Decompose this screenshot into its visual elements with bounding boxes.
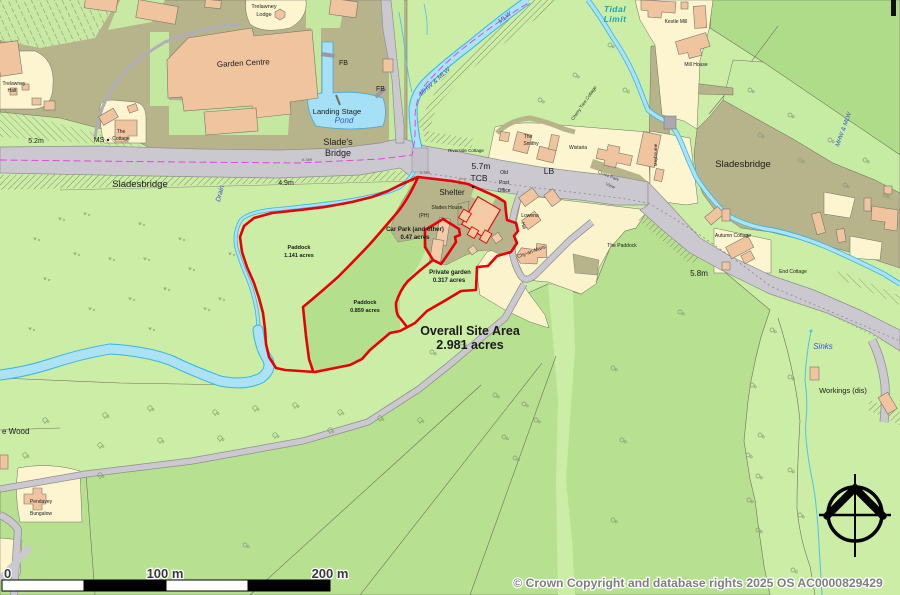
- svg-text:A 389: A 389: [420, 170, 431, 175]
- svg-text:FB: FB: [339, 60, 348, 67]
- svg-text:Bungalow: Bungalow: [30, 511, 52, 517]
- svg-text:Private garden: Private garden: [429, 270, 471, 276]
- svg-text:Office: Office: [498, 188, 511, 194]
- svg-text:Trelawney: Trelawney: [3, 81, 26, 87]
- svg-text:Trelawney: Trelawney: [251, 4, 276, 10]
- svg-text:Pendavey: Pendavey: [30, 499, 53, 505]
- svg-text:0.47 acres: 0.47 acres: [400, 235, 430, 241]
- svg-text:4.9m: 4.9m: [278, 180, 294, 187]
- svg-text:Car Park (and other): Car Park (and other): [386, 227, 444, 233]
- svg-text:Shelter: Shelter: [439, 188, 465, 197]
- svg-text:Landing Stage: Landing Stage: [313, 107, 361, 116]
- svg-text:Paddock: Paddock: [354, 300, 378, 306]
- svg-text:FB: FB: [376, 86, 385, 93]
- svg-text:TCB: TCB: [471, 173, 488, 183]
- svg-text:The: The: [117, 129, 126, 135]
- svg-text:Tidal: Tidal: [604, 4, 626, 14]
- svg-text:e Wood: e Wood: [2, 427, 29, 436]
- svg-text:5.7m: 5.7m: [472, 161, 491, 171]
- svg-text:MS: MS: [94, 137, 105, 144]
- svg-text:Slades House: Slades House: [431, 205, 462, 211]
- svg-text:0.859 acres: 0.859 acres: [350, 308, 380, 314]
- svg-text:© Crown Copyright and database: © Crown Copyright and database rights 20…: [513, 576, 883, 590]
- svg-text:Cottage: Cottage: [112, 136, 130, 142]
- svg-text:Pond: Pond: [335, 116, 354, 125]
- svg-text:5.8m: 5.8m: [690, 269, 708, 278]
- svg-text:Sladesbridge: Sladesbridge: [112, 179, 167, 190]
- svg-text:Lodge: Lodge: [256, 12, 271, 18]
- svg-text:Lowena: Lowena: [521, 213, 539, 219]
- svg-text:1.141 acres: 1.141 acres: [284, 253, 314, 259]
- svg-text:Smithy: Smithy: [523, 141, 539, 147]
- svg-text:Bridge: Bridge: [325, 148, 351, 158]
- svg-text:A 389: A 389: [302, 157, 313, 162]
- svg-text:The: The: [524, 134, 533, 140]
- svg-text:2.981 acres: 2.981 acres: [436, 338, 503, 352]
- svg-text:Autumn Cottage: Autumn Cottage: [715, 233, 751, 239]
- svg-text:Slade's: Slade's: [323, 137, 353, 147]
- svg-text:Sladesbridge: Sladesbridge: [715, 159, 770, 170]
- svg-text:0.317 acres: 0.317 acres: [433, 278, 466, 284]
- svg-text:100 m: 100 m: [147, 566, 184, 581]
- svg-text:Wistaria: Wistaria: [569, 145, 587, 151]
- svg-text:Post: Post: [499, 180, 510, 186]
- svg-text:5.2m: 5.2m: [28, 138, 44, 145]
- svg-text:Old: Old: [500, 170, 508, 176]
- svg-text:Halt: Halt: [8, 88, 18, 94]
- svg-text:Maybourne: Maybourne: [653, 143, 658, 166]
- svg-text:0: 0: [4, 566, 11, 581]
- svg-text:Kestle Mill: Kestle Mill: [665, 19, 688, 25]
- svg-text:Paddock: Paddock: [288, 245, 312, 251]
- svg-text:The Paddock: The Paddock: [607, 243, 637, 249]
- svg-text:(PH): (PH): [419, 213, 430, 219]
- svg-text:Limit: Limit: [604, 14, 627, 24]
- svg-text:End Cottage: End Cottage: [779, 269, 807, 275]
- svg-text:LB: LB: [544, 166, 555, 176]
- svg-text:Overall Site Area: Overall Site Area: [420, 324, 521, 338]
- svg-text:Sinks: Sinks: [813, 342, 833, 351]
- svg-text:Workings (dis): Workings (dis): [819, 386, 867, 395]
- svg-text:200 m: 200 m: [312, 566, 349, 581]
- svg-text:Mill House: Mill House: [684, 62, 708, 68]
- svg-text:Riverside Cottage: Riverside Cottage: [448, 148, 484, 153]
